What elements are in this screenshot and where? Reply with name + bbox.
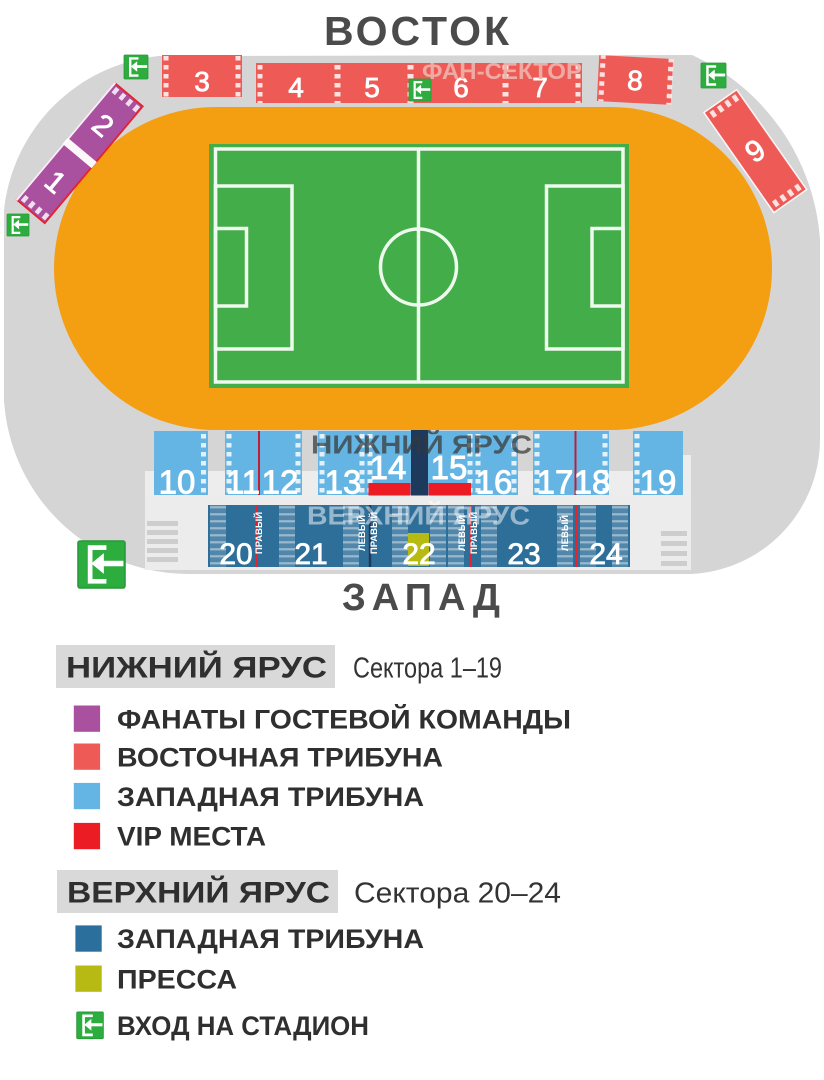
svg-text:10: 10 <box>159 464 196 501</box>
svg-text:5: 5 <box>364 72 380 103</box>
svg-text:4: 4 <box>288 72 304 103</box>
svg-text:13: 13 <box>325 464 362 501</box>
svg-text:20: 20 <box>219 538 252 571</box>
svg-text:17: 17 <box>537 464 574 501</box>
svg-text:НИЖНИЙ ЯРУС: НИЖНИЙ ЯРУС <box>311 430 532 460</box>
svg-text:ПРАВЫЙ: ПРАВЫЙ <box>253 512 265 554</box>
svg-text:19: 19 <box>640 464 677 501</box>
svg-text:22: 22 <box>402 538 435 571</box>
svg-text:ВЕРХНИЙ ЯРУС: ВЕРХНИЙ ЯРУС <box>67 876 330 910</box>
svg-text:21: 21 <box>294 538 327 571</box>
svg-text:16: 16 <box>476 464 513 501</box>
svg-text:VIP МЕСТА: VIP МЕСТА <box>117 822 266 852</box>
svg-text:ВОСТОЧНАЯ ТРИБУНА: ВОСТОЧНАЯ ТРИБУНА <box>117 742 443 772</box>
svg-text:ВХОД НА СТАДИОН: ВХОД НА СТАДИОН <box>117 1011 369 1041</box>
svg-text:ФАН-СЕКТОР: ФАН-СЕКТОР <box>422 58 582 84</box>
svg-text:Сектора 1–19: Сектора 1–19 <box>353 653 502 685</box>
svg-text:11: 11 <box>226 464 260 501</box>
svg-text:ЗАПАДНАЯ ТРИБУНА: ЗАПАДНАЯ ТРИБУНА <box>117 924 424 954</box>
svg-text:НИЖНИЙ ЯРУС: НИЖНИЙ ЯРУС <box>66 651 327 685</box>
svg-text:3: 3 <box>194 66 210 97</box>
svg-text:ВОСТОК: ВОСТОК <box>324 8 512 54</box>
svg-text:23: 23 <box>507 538 540 571</box>
svg-text:12: 12 <box>262 464 299 501</box>
svg-text:18: 18 <box>574 464 611 501</box>
svg-text:ВЕРХНИЙ ЯРУС: ВЕРХНИЙ ЯРУС <box>307 501 530 531</box>
svg-text:Сектора 20–24: Сектора 20–24 <box>354 878 561 910</box>
svg-text:ЗАПАД: ЗАПАД <box>342 577 506 619</box>
svg-text:ЗАПАДНАЯ ТРИБУНА: ЗАПАДНАЯ ТРИБУНА <box>117 782 424 812</box>
svg-text:ФАНАТЫ ГОСТЕВОЙ КОМАНДЫ: ФАНАТЫ ГОСТЕВОЙ КОМАНДЫ <box>117 703 571 734</box>
svg-text:24: 24 <box>589 538 622 571</box>
svg-text:8: 8 <box>626 65 643 97</box>
svg-text:ПРЕССА: ПРЕССА <box>117 965 237 995</box>
svg-text:ЛЕВЫЙ: ЛЕВЫЙ <box>559 515 571 551</box>
